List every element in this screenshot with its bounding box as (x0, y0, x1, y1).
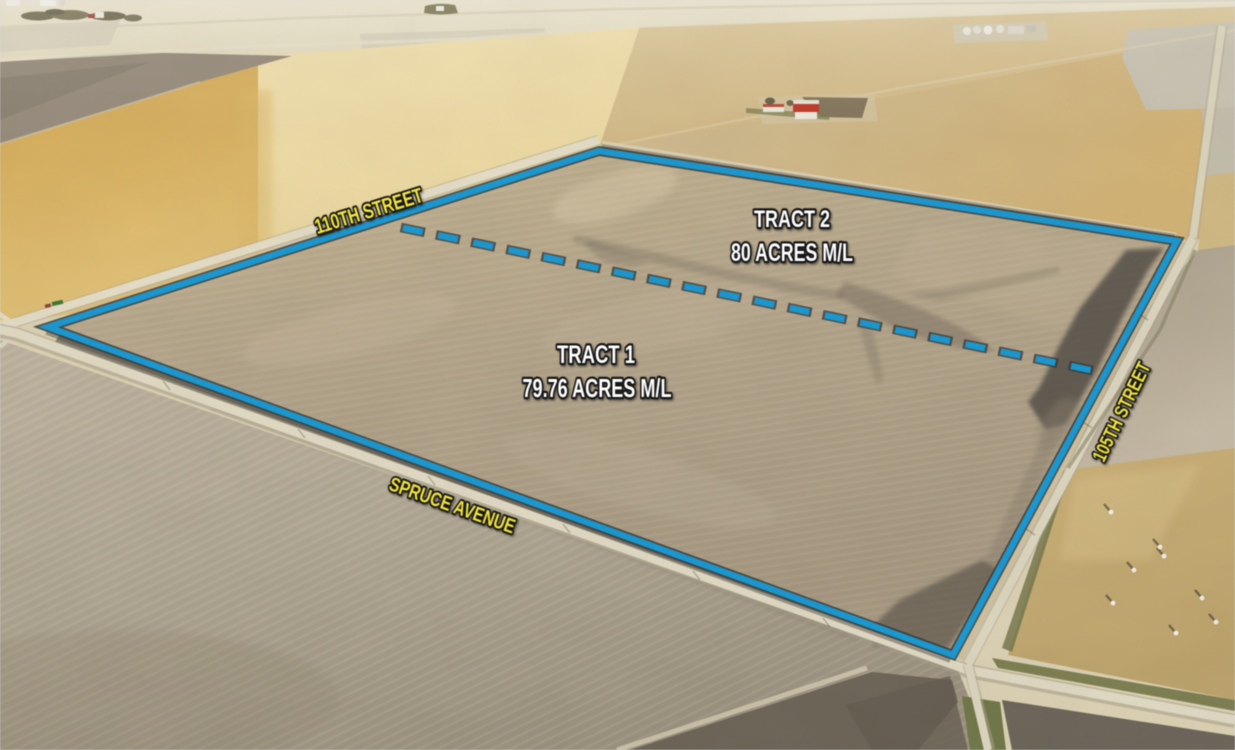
svg-text:TRACT 2: TRACT 2 (754, 206, 830, 233)
svg-text:TRACT 1: TRACT 1 (557, 341, 635, 369)
svg-text:80 ACRES M/L: 80 ACRES M/L (731, 239, 853, 267)
svg-text:79.76 ACRES M/L: 79.76 ACRES M/L (523, 373, 672, 403)
